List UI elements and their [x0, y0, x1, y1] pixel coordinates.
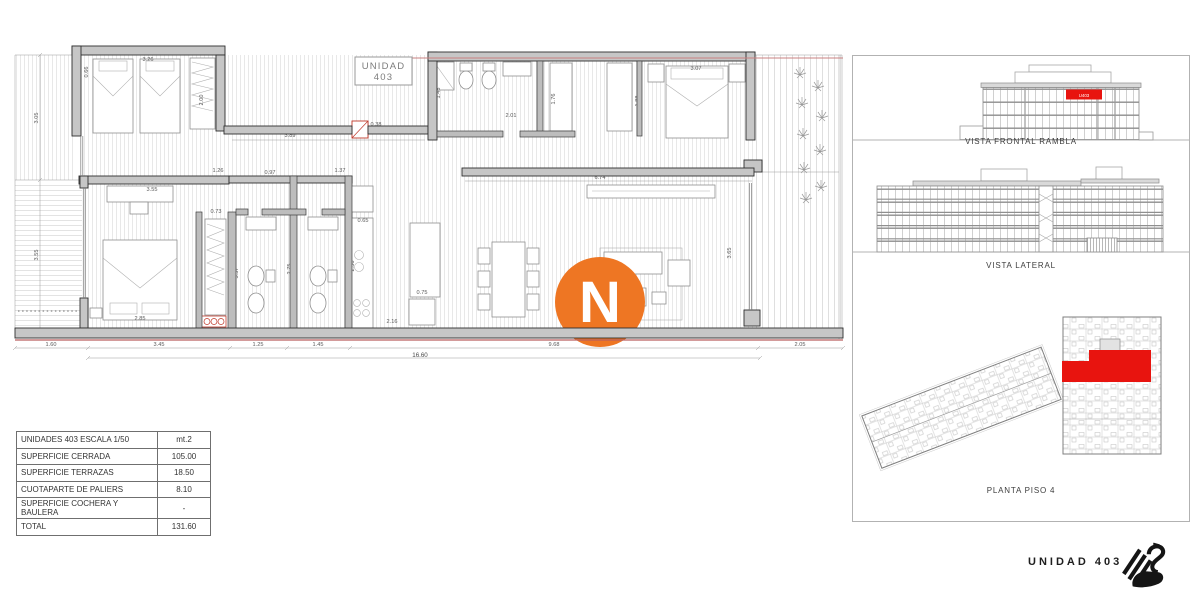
svg-text:0.97: 0.97: [265, 170, 276, 176]
unit-label-box: UNIDAD 403: [355, 57, 412, 85]
svg-text:2.01: 2.01: [506, 113, 517, 119]
svg-text:3.55: 3.55: [147, 187, 158, 193]
svg-text:2.05: 2.05: [795, 342, 806, 348]
svg-text:3.45: 3.45: [154, 342, 165, 348]
svg-text:2.00: 2.00: [199, 95, 205, 106]
table-row-value: 8.10: [158, 481, 211, 498]
svg-text:403: 403: [374, 72, 393, 83]
table-row-value: 105.00: [158, 448, 211, 465]
table-row: CUOTAPARTE DE PALIERS 8.10: [17, 481, 211, 498]
table-row-label: UNIDADES 403 ESCALA 1/50: [17, 432, 158, 449]
building-b-footprint: [1062, 317, 1161, 454]
table-row-value: -: [158, 498, 211, 519]
table-row: TOTAL 131.60: [17, 519, 211, 536]
table-row-value: 131.60: [158, 519, 211, 536]
table-row-label: SUPERFICIE COCHERA Y BAULERA: [17, 498, 158, 519]
dining-table: [478, 242, 539, 317]
svg-text:U403: U403: [1079, 93, 1090, 98]
svg-text:1.45: 1.45: [313, 342, 324, 348]
n-logo-letter: N: [579, 270, 621, 335]
svg-text:1.25: 1.25: [253, 342, 264, 348]
svg-text:0.73: 0.73: [211, 209, 222, 215]
svg-text:2.85: 2.85: [135, 316, 146, 322]
unit-highlight-frontal: U403: [1066, 90, 1102, 100]
svg-text:1.60: 1.60: [46, 342, 57, 348]
svg-text:1.26: 1.26: [213, 168, 224, 174]
svg-text:3.55: 3.55: [34, 250, 40, 261]
vista-lateral-label: VISTA LATERAL: [853, 261, 1189, 270]
svg-text:0.75: 0.75: [417, 290, 428, 296]
svg-text:3.07: 3.07: [691, 66, 702, 72]
table-row: SUPERFICIE CERRADA 105.00: [17, 448, 211, 465]
table-row-value: 18.50: [158, 465, 211, 482]
svg-text:0.66: 0.66: [84, 67, 90, 78]
svg-text:UNIDAD: UNIDAD: [362, 61, 406, 72]
vista-frontal-drawing: U403: [853, 64, 1189, 144]
svg-text:3.26: 3.26: [143, 57, 154, 63]
table-row: SUPERFICIE COCHERA Y BAULERA -: [17, 498, 211, 519]
table-row-value: mt.2: [158, 432, 211, 449]
table-row-label: CUOTAPARTE DE PALIERS: [17, 481, 158, 498]
svg-text:2.16: 2.16: [387, 319, 398, 325]
svg-text:1.37: 1.37: [335, 168, 346, 174]
svg-text:16.60: 16.60: [412, 352, 428, 359]
drawing-sheet: 3.05 3.55 1.60 3.45 1.25 1.45 9.68 2.05 …: [0, 0, 1200, 600]
bedroom1-furniture: [93, 58, 215, 133]
table-row-label: SUPERFICIE CERRADA: [17, 448, 158, 465]
swan-logo-icon: [1122, 540, 1172, 590]
svg-text:0.65: 0.65: [358, 218, 369, 224]
vista-lateral-drawing: [853, 164, 1189, 259]
planta-piso-label: PLANTA PISO 4: [853, 486, 1189, 495]
entry-door-marker: [352, 121, 368, 138]
svg-text:9.68: 9.68: [549, 342, 560, 348]
svg-text:3.05: 3.05: [34, 113, 40, 124]
vista-frontal-label: VISTA FRONTAL RAMBLA: [853, 137, 1189, 146]
area-table: UNIDADES 403 ESCALA 1/50 mt.2 SUPERFICIE…: [16, 431, 211, 536]
footer-unit-title: UNIDAD 403: [1028, 556, 1122, 568]
planta-piso-drawing: [853, 311, 1189, 481]
views-panel: U403 VISTA FRONTAL RAMBLA VISTA LATERAL: [852, 55, 1190, 522]
table-row: UNIDADES 403 ESCALA 1/50 mt.2: [17, 432, 211, 449]
svg-text:3.65: 3.65: [727, 248, 733, 259]
table-row-label: SUPERFICIE TERRAZAS: [17, 465, 158, 482]
svg-text:1.76: 1.76: [551, 94, 557, 105]
heater-marker: [200, 316, 226, 327]
table-row: SUPERFICIE TERRAZAS 18.50: [17, 465, 211, 482]
table-row-label: TOTAL: [17, 519, 158, 536]
building-a-footprint: [859, 345, 1063, 471]
